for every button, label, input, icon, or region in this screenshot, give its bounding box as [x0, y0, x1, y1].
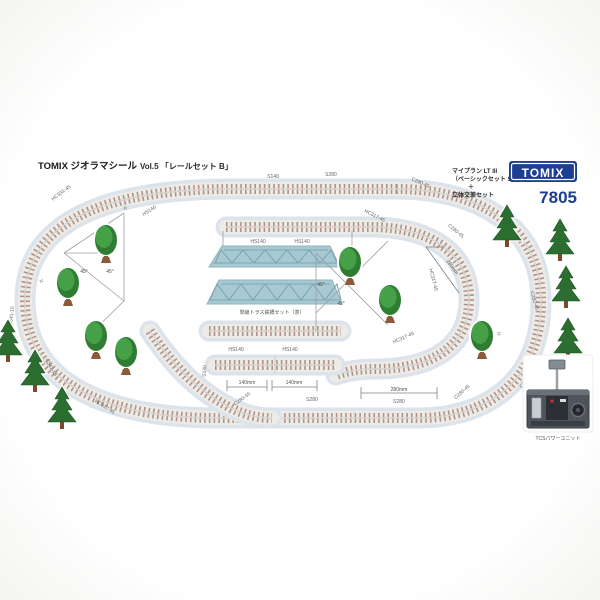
track-label: S280 [325, 172, 337, 178]
track-label: S280 [393, 399, 405, 405]
deciduous-tree-sticker [379, 285, 402, 324]
angle-label: 45° [80, 269, 88, 275]
diorama-sticker-sheet: 単線トラス鉄橋セット（茶） 140mm 140mm 280mm 280mm 45… [0, 0, 600, 600]
track-label: S140 [202, 365, 208, 377]
track-label: S140 [267, 174, 279, 180]
sheet-graphic: 単線トラス鉄橋セット（茶） 140mm 140mm 280mm 280mm 45… [0, 0, 600, 600]
throttle-handle-icon [549, 360, 565, 369]
dimension-label: 140mm [239, 380, 256, 386]
model-number: 7805 [539, 188, 577, 207]
tomix-logo: TOMIX [509, 161, 577, 182]
speed-dial-center [576, 408, 580, 412]
track-label: HS140 [250, 239, 266, 245]
truss-bridge-sticker-1 [209, 246, 340, 267]
sheet-title: TOMIX ジオラマシール [38, 161, 138, 172]
dimension-label: 140mm [286, 380, 303, 386]
angle-label: 45° [337, 301, 345, 307]
joint-mark: = [121, 206, 128, 210]
power-unit-label: TCSパワーユニット [535, 436, 580, 442]
deciduous-tree-sticker [115, 337, 138, 376]
conifer-tree-sticker [554, 318, 582, 360]
deciduous-tree-sticker [85, 321, 108, 360]
volume-title: Vol.5 「レールセット B」 [140, 161, 233, 171]
deciduous-tree-sticker [95, 225, 118, 264]
tomix-logo-text: TOMIX [522, 166, 565, 180]
angle-label: 45° [317, 282, 325, 288]
plan-name-line1: マイプラン LT III [452, 167, 498, 175]
track-label: S280 [306, 397, 318, 403]
display-hs140-track [215, 356, 335, 374]
plan-name-line4: 立体交差セット [452, 191, 494, 199]
track-label: C280-45 [453, 383, 471, 400]
track-label: HC317-45 [392, 331, 415, 346]
dimension-label: 280mm [391, 387, 408, 393]
track-label: C280-45 [446, 223, 465, 240]
track-label: HS140 [228, 347, 244, 353]
track-label: HS140 [141, 204, 157, 217]
bridge-caption: 単線トラス鉄橋セット（茶） [240, 309, 305, 316]
power-unit-top-edge [527, 390, 589, 395]
power-unit-switch [560, 399, 566, 402]
power-led-icon [550, 399, 553, 402]
joint-mark: = [39, 278, 45, 286]
track-label: HS140 [282, 347, 298, 353]
deciduous-tree-sticker [471, 321, 494, 360]
conifer-tree-sticker [546, 219, 574, 261]
track-label: HC391-45 [50, 184, 72, 203]
conifer-tree-sticker [552, 266, 580, 308]
deciduous-tree-sticker [57, 268, 80, 307]
angle-label: 45° [106, 269, 114, 275]
power-unit-base-strip [531, 421, 585, 426]
joint-mark: = [497, 331, 501, 338]
track-label: HC317-45 [427, 268, 438, 292]
track-label: HS140 [294, 239, 310, 245]
power-unit-side-module [532, 398, 541, 418]
power-unit-sticker [523, 355, 593, 432]
plan-name-line3: ＋ [468, 184, 474, 191]
